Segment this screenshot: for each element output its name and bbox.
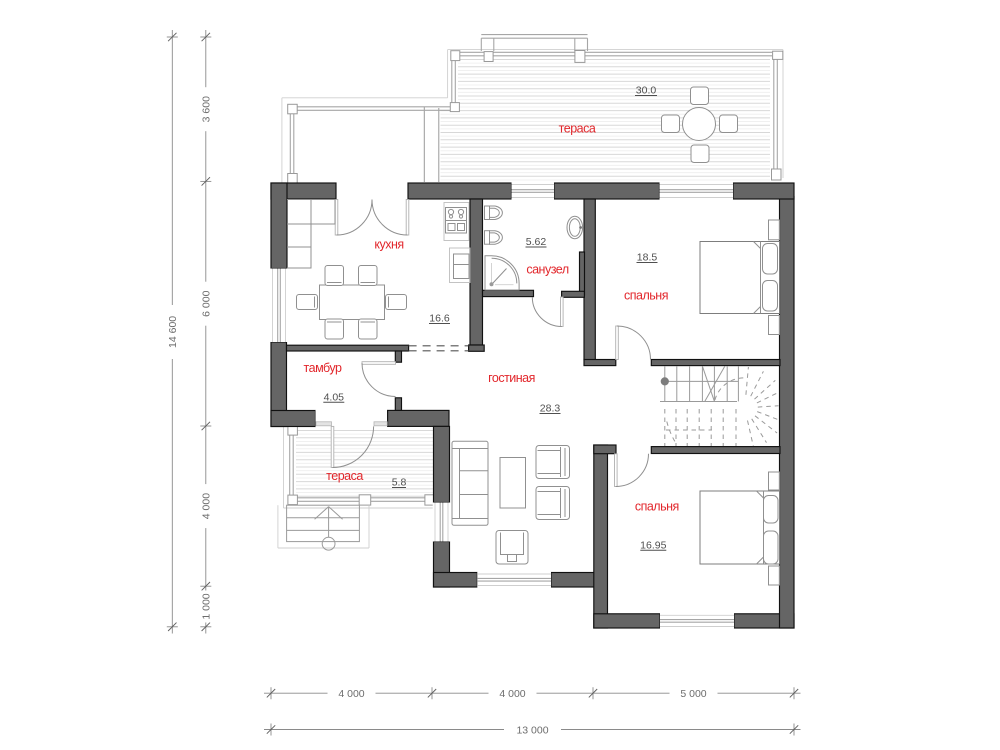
svg-text:4 000: 4 000 bbox=[499, 688, 525, 700]
svg-text:14 600: 14 600 bbox=[167, 316, 179, 348]
svg-text:5.8: 5.8 bbox=[392, 477, 407, 489]
svg-text:1 000: 1 000 bbox=[200, 593, 212, 619]
svg-text:16.6: 16.6 bbox=[429, 313, 450, 325]
svg-text:4.05: 4.05 bbox=[324, 391, 345, 403]
svg-text:тамбур: тамбур bbox=[304, 361, 342, 375]
svg-text:18.5: 18.5 bbox=[637, 252, 658, 264]
svg-text:спальня: спальня bbox=[624, 289, 668, 303]
svg-text:13 000: 13 000 bbox=[516, 724, 548, 736]
svg-text:тераса: тераса bbox=[326, 469, 363, 483]
svg-text:гостиная: гостиная bbox=[488, 371, 535, 385]
svg-text:спальня: спальня bbox=[635, 500, 679, 514]
svg-text:5.62: 5.62 bbox=[526, 236, 547, 248]
svg-text:тераса: тераса bbox=[559, 122, 596, 136]
svg-text:16.95: 16.95 bbox=[640, 539, 666, 551]
svg-text:4 000: 4 000 bbox=[200, 493, 212, 519]
svg-text:6 000: 6 000 bbox=[200, 290, 212, 316]
svg-text:санузел: санузел bbox=[526, 263, 568, 277]
svg-text:5 000: 5 000 bbox=[680, 688, 706, 700]
svg-text:30.0: 30.0 bbox=[636, 85, 657, 97]
svg-text:4 000: 4 000 bbox=[338, 688, 364, 700]
svg-text:28.3: 28.3 bbox=[540, 403, 561, 415]
svg-text:3 600: 3 600 bbox=[200, 96, 212, 122]
svg-text:кухня: кухня bbox=[374, 238, 403, 252]
